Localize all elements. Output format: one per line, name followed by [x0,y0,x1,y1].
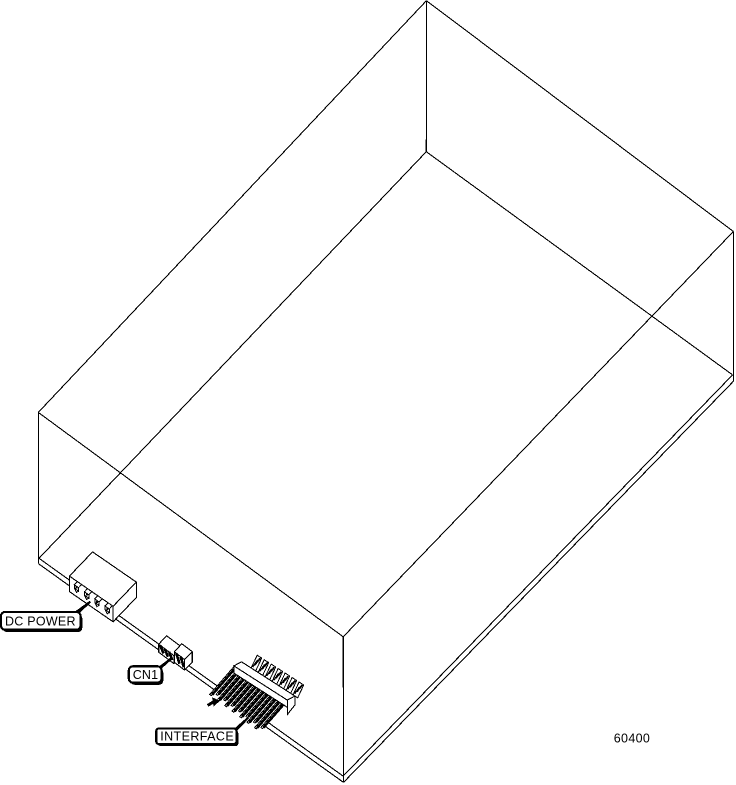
svg-text:DC POWER: DC POWER [5,614,76,628]
svg-text:INTERFACE: INTERFACE [160,730,234,744]
svg-text:CN1: CN1 [133,668,158,682]
svg-text:60400: 60400 [614,732,650,746]
